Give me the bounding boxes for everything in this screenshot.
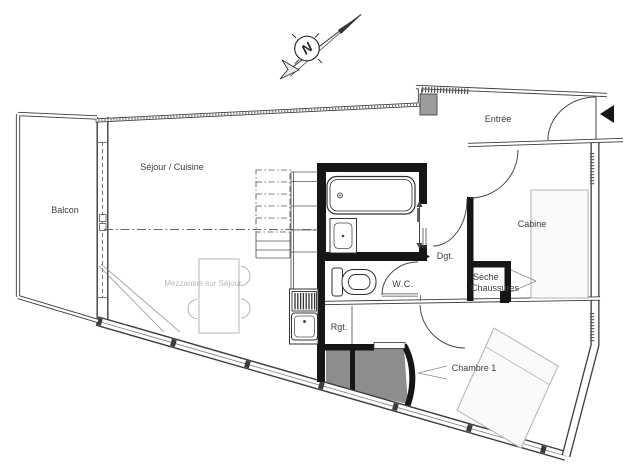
bathtub-icon <box>327 177 415 215</box>
room-label-entrance: Entrée <box>485 114 512 124</box>
toilet-icon <box>332 268 376 296</box>
cabin-bed <box>531 190 588 298</box>
shaft-access-panel <box>374 343 405 349</box>
duct-shaft <box>420 94 437 115</box>
balcony-window-band <box>97 117 109 320</box>
room-label-balcony: Balcon <box>51 205 79 215</box>
room-label-storage: Rgt. <box>331 322 348 332</box>
room-label-cabin: Cabine <box>518 219 547 229</box>
room-label-living-kitchen: Séjour / Cuisine <box>140 162 204 172</box>
room-label-bedroom1: Chambre 1 <box>452 363 497 373</box>
room-label-shoe-dryer-1: Sèche <box>473 272 499 282</box>
room-label-mezzanine-note: Mezzanine sur Séjour <box>164 279 242 288</box>
floor-plan-canvas: N Balcon Séjour / Cuisine Mezzanine sur … <box>0 0 640 471</box>
kitchen-sink-icon <box>292 313 318 340</box>
room-label-wc: W.C. <box>392 279 414 289</box>
washbasin-icon <box>330 219 357 254</box>
cooktop-icon <box>292 292 317 312</box>
floor-plan-page: N Balcon Séjour / Cuisine Mezzanine sur … <box>0 0 640 471</box>
room-label-hallway: Dgt. <box>437 251 454 261</box>
room-label-shoe-dryer-2: Chaussures <box>471 283 520 293</box>
